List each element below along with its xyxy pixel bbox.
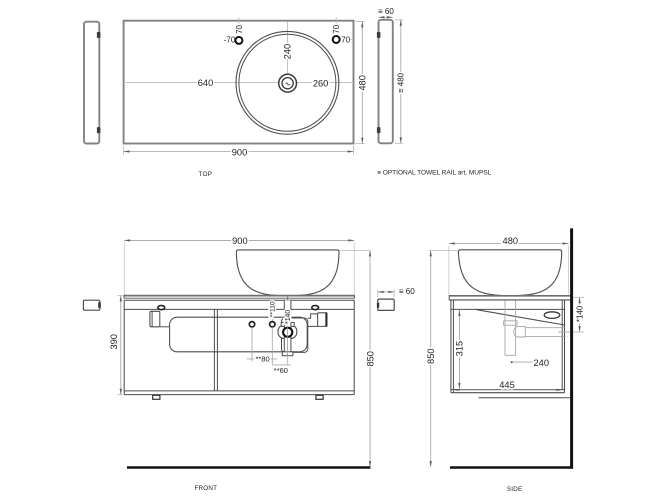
svg-text:*140: *140 bbox=[285, 310, 292, 324]
svg-text:FRONT: FRONT bbox=[194, 485, 217, 492]
svg-text:TOP: TOP bbox=[199, 171, 212, 178]
svg-text:315: 315 bbox=[455, 341, 465, 357]
svg-text:480: 480 bbox=[503, 236, 519, 246]
svg-text:900: 900 bbox=[232, 148, 248, 158]
svg-text:*140: *140 bbox=[576, 305, 585, 322]
svg-text:**110: **110 bbox=[270, 301, 277, 317]
svg-text:70: 70 bbox=[332, 24, 341, 33]
svg-text:**60: **60 bbox=[274, 366, 288, 375]
svg-text:850: 850 bbox=[365, 351, 375, 367]
svg-text:480: 480 bbox=[358, 75, 368, 91]
svg-text:SIDE: SIDE bbox=[507, 486, 523, 493]
svg-text:≡ 60: ≡ 60 bbox=[378, 7, 394, 16]
svg-text:900: 900 bbox=[232, 236, 248, 246]
svg-text:240: 240 bbox=[283, 44, 293, 60]
svg-text:260: 260 bbox=[313, 78, 329, 88]
svg-text:70: 70 bbox=[235, 24, 244, 33]
svg-text:**80: **80 bbox=[256, 355, 270, 364]
svg-text:640: 640 bbox=[198, 78, 214, 88]
svg-text:390: 390 bbox=[109, 334, 119, 350]
svg-text:≡ OPTIONAL TOWEL RAIL art. MUP: ≡ OPTIONAL TOWEL RAIL art. MUPSL bbox=[377, 169, 491, 176]
svg-text:-70: -70 bbox=[224, 36, 236, 45]
svg-text:445: 445 bbox=[499, 380, 515, 390]
svg-text:≡ 60: ≡ 60 bbox=[399, 287, 415, 296]
svg-text:70: 70 bbox=[341, 35, 350, 44]
svg-text:850: 850 bbox=[426, 348, 436, 364]
svg-text:≡ 480: ≡ 480 bbox=[397, 72, 406, 93]
svg-text:240: 240 bbox=[534, 358, 550, 368]
